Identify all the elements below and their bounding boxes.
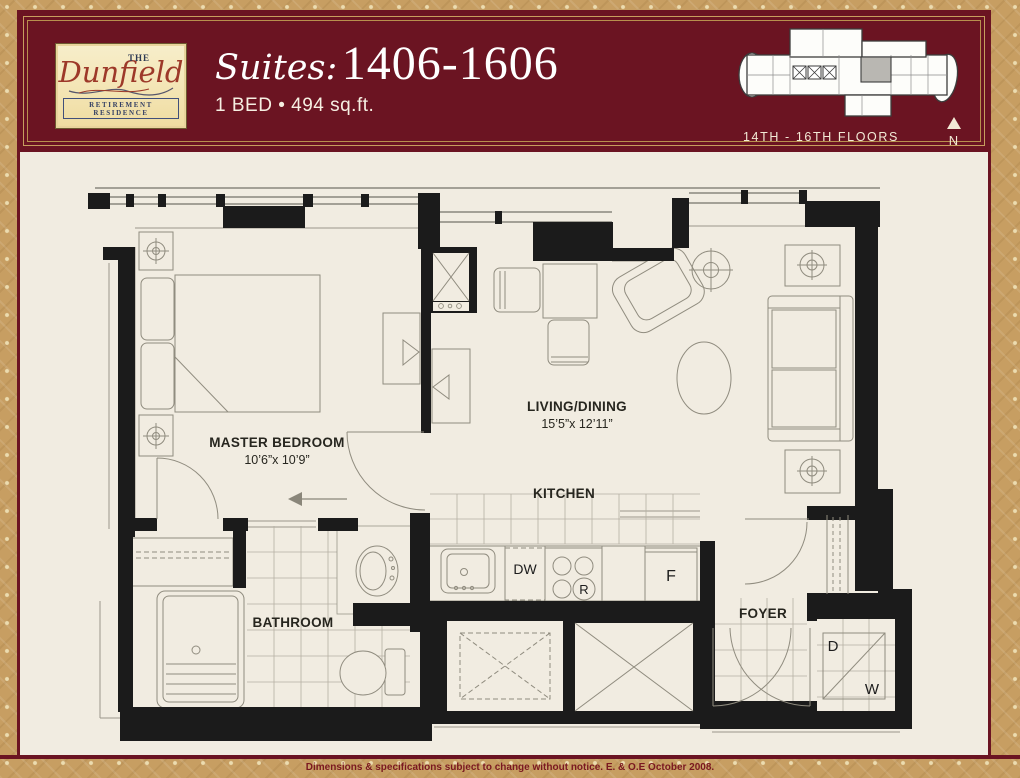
entry-door-swing: [745, 519, 809, 584]
suite-numbers: 1406-1606: [342, 37, 559, 90]
closet-shelf-dashed: [136, 552, 229, 558]
bed: [175, 275, 320, 412]
label-bathroom: BATHROOM: [253, 615, 334, 630]
footer-band: Dimensions & specifications subject to c…: [0, 759, 1020, 778]
kitchen-sink: [441, 549, 495, 593]
dining-chair: [548, 320, 589, 365]
label-range: R: [579, 582, 588, 597]
shaft: [447, 621, 563, 711]
label-master-bedroom: MASTER BEDROOM: [209, 435, 344, 450]
suite-subtitle: 1 BED • 494 sq.ft.: [215, 95, 559, 117]
floorplan-brochure-page: THE Dunfield RETIREMENT RESIDENCE Suites…: [0, 0, 1020, 778]
north-label: N: [943, 135, 965, 146]
window-lines: [95, 188, 880, 222]
header-banner: THE Dunfield RETIREMENT RESIDENCE Suites…: [17, 10, 991, 152]
label-washer: W: [865, 681, 880, 698]
wardrobe: [432, 349, 470, 423]
closet-door-swing: [157, 458, 218, 519]
bedroom-door-swing: [347, 432, 425, 510]
toilet-bowl: [340, 651, 386, 695]
dining-chair: [494, 268, 540, 312]
bed-pillow: [141, 343, 174, 409]
entry-arrow: [288, 492, 347, 506]
label-fridge: F: [666, 568, 676, 585]
logo-the-text: THE: [128, 53, 150, 63]
dunfield-logo: THE Dunfield RETIREMENT RESIDENCE: [55, 43, 187, 129]
logo-tagline: RETIREMENT RESIDENCE: [63, 98, 179, 119]
burner: [575, 557, 593, 575]
shower: [157, 591, 244, 708]
floorplan-drawing: MASTER BEDROOM 10’6”x 10’9” LIVING/DININ…: [20, 152, 988, 757]
suites-script-label: Suites:: [215, 48, 337, 88]
north-arrow-icon: [946, 117, 962, 130]
floors-caption: 14TH - 16TH FLOORS: [743, 130, 899, 144]
label-living-dining: LIVING/DINING: [527, 399, 627, 414]
closet: [132, 538, 233, 586]
title-block: Suites: 1406-1606 1 BED • 494 sq.ft.: [215, 36, 559, 117]
toilet-tank: [385, 649, 405, 695]
keyplan-block: 14TH - 16TH FLOORS N: [733, 22, 965, 146]
logo-name-text: Dunfield: [56, 57, 186, 87]
label-kitchen: KITCHEN: [533, 486, 595, 501]
bathroom-sink: [356, 546, 398, 596]
label-living-dining-dims: 15’5”x 12’11”: [541, 417, 612, 431]
label-dishwasher: DW: [513, 561, 537, 577]
disclaimer-text: Dimensions & specifications subject to c…: [0, 759, 1020, 777]
keyplan-suite-highlight: [861, 57, 891, 82]
dining-table: [543, 264, 597, 318]
building-keyplan: [733, 22, 965, 122]
coat-closet-rod-dashed: [833, 517, 840, 591]
burner: [553, 557, 571, 575]
rug: [677, 342, 731, 414]
label-master-bedroom-dims: 10’6”x 10’9”: [244, 453, 309, 467]
label-dryer: D: [828, 638, 839, 655]
floorplan-canvas: MASTER BEDROOM 10’6”x 10’9” LIVING/DININ…: [17, 152, 991, 757]
bed-pillow: [141, 278, 174, 340]
foyer-closet-doors: [713, 628, 810, 706]
north-indicator: N: [943, 117, 965, 146]
label-foyer: FOYER: [739, 606, 787, 621]
burner: [553, 580, 571, 598]
